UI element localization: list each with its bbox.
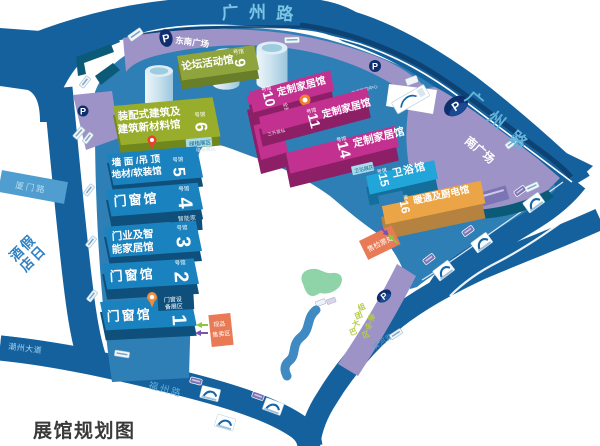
- svg-text:P: P: [80, 106, 86, 116]
- svg-text:1: 1: [167, 314, 190, 326]
- svg-text:现品: 现品: [213, 321, 226, 329]
- svg-text:5: 5: [169, 166, 189, 177]
- svg-text:广: 广: [221, 2, 239, 23]
- svg-text:2: 2: [169, 271, 192, 283]
- svg-text:展馆规划图: 展馆规划图: [33, 419, 136, 442]
- svg-text:6: 6: [191, 121, 211, 132]
- svg-text:门窗馆: 门窗馆: [109, 266, 155, 284]
- svg-text:门窗馆: 门窗馆: [106, 307, 152, 324]
- svg-text:路: 路: [276, 3, 295, 24]
- svg-text:P: P: [372, 62, 378, 72]
- svg-text:3: 3: [171, 236, 194, 249]
- svg-text:州: 州: [248, 3, 266, 22]
